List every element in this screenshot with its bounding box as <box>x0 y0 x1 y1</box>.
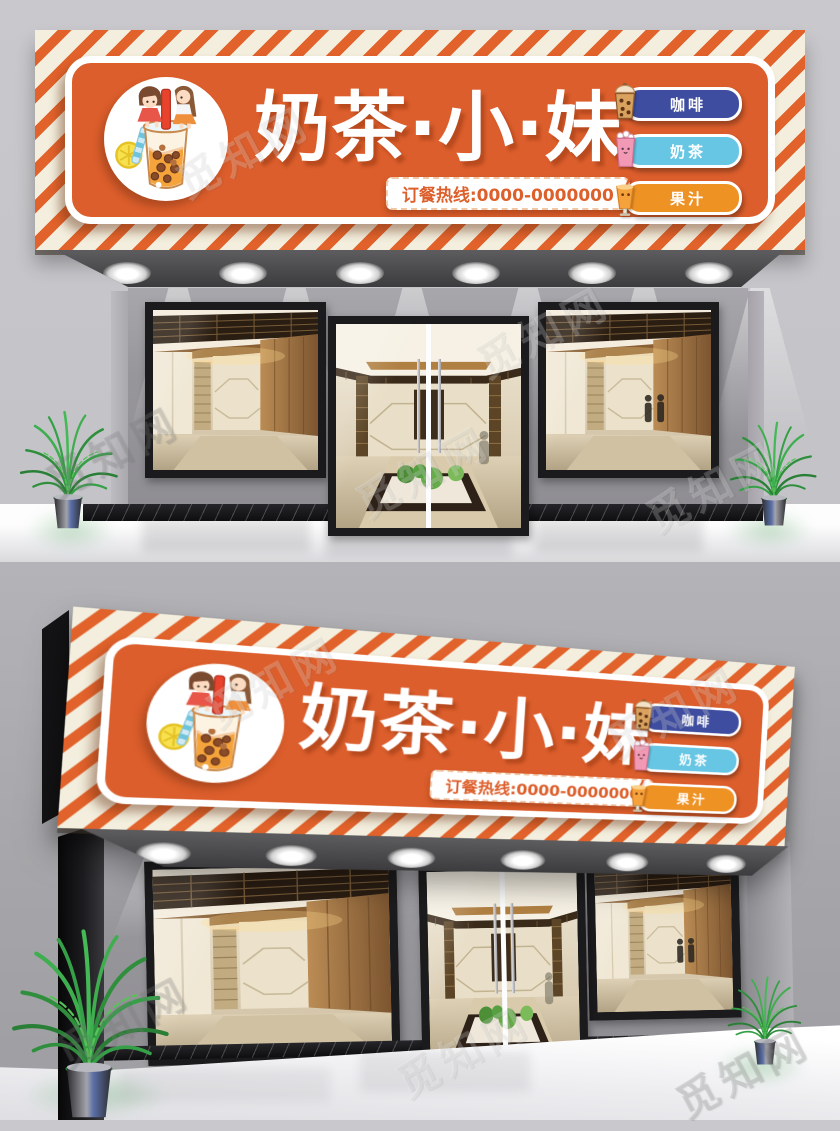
signboard-panel: 奶茶·小·妹 订餐热线:0000-0000000 咖啡 奶茶 果汁 <box>95 635 770 824</box>
scene-front-view: 奶茶·小·妹 订餐热线:0000-0000000 咖啡 奶茶 果汁 <box>0 0 840 562</box>
potted-plant-right-angled <box>726 968 804 1066</box>
bubble-tea-girls-logo-icon <box>104 77 228 201</box>
coffee-cup-icon <box>610 83 640 123</box>
bubble-tea-girls-logo-icon <box>142 659 288 785</box>
downlight <box>219 262 267 284</box>
entrance-door[interactable] <box>328 316 529 536</box>
menu-pill-coffee: 咖啡 <box>624 87 742 121</box>
shop-name-title: 奶茶·小·妹 <box>240 85 636 171</box>
menu-pill-coffee: 咖啡 <box>641 703 741 738</box>
menu-pill-list: 咖啡 奶茶 果汁 <box>637 703 742 815</box>
menu-pill-label: 奶茶 <box>679 750 710 769</box>
downlight <box>452 262 500 284</box>
hotline-label: 订餐热线:0000-0000000 <box>386 177 630 210</box>
shop-logo <box>142 659 288 785</box>
menu-pill-label: 咖啡 <box>681 711 712 730</box>
potted-plant-left-angled <box>4 912 174 1120</box>
shop-name-title: 奶茶·小·妹 <box>295 677 654 774</box>
downlight <box>685 262 733 284</box>
potted-plant-left <box>16 400 120 530</box>
juice-glass-icon <box>624 778 652 813</box>
downlight <box>568 262 616 284</box>
downlight <box>103 262 151 284</box>
menu-pill-juice: 果汁 <box>624 181 742 215</box>
menu-pill-label: 果汁 <box>670 188 706 209</box>
menu-pill-milktea: 奶茶 <box>639 742 740 775</box>
menu-pill-juice: 果汁 <box>637 782 738 814</box>
downlight <box>336 262 384 284</box>
menu-pill-label: 果汁 <box>676 789 707 808</box>
menu-pill-milktea: 奶茶 <box>624 134 742 168</box>
juice-glass-icon <box>610 177 640 217</box>
shop-logo <box>104 77 228 201</box>
sign-soffit <box>55 250 785 287</box>
shop-window-left-angled <box>144 857 400 1066</box>
signboard-stripe-frame: 奶茶·小·妹 订餐热线:0000-0000000 咖啡 奶茶 果汁 <box>35 30 805 250</box>
signboard-panel: 奶茶·小·妹 订餐热线:0000-0000000 咖啡 奶茶 果汁 <box>65 56 775 224</box>
menu-pill-label: 咖啡 <box>670 94 706 115</box>
menu-pill-list: 咖啡 奶茶 果汁 <box>624 87 742 215</box>
hotline-label: 订餐热线:0000-0000000 <box>429 769 655 807</box>
shop-window-left <box>145 302 326 478</box>
potted-plant-right <box>728 412 820 527</box>
milktea-cup-icon <box>610 130 640 170</box>
menu-pill-label: 奶茶 <box>670 141 706 162</box>
shop-window-right-angled <box>586 853 741 1020</box>
shop-window-right <box>538 302 719 478</box>
signboard-front: 奶茶·小·妹 订餐热线:0000-0000000 咖啡 奶茶 果汁 <box>35 30 805 288</box>
milktea-cup-icon <box>627 738 655 773</box>
coffee-cup-icon <box>629 698 657 733</box>
